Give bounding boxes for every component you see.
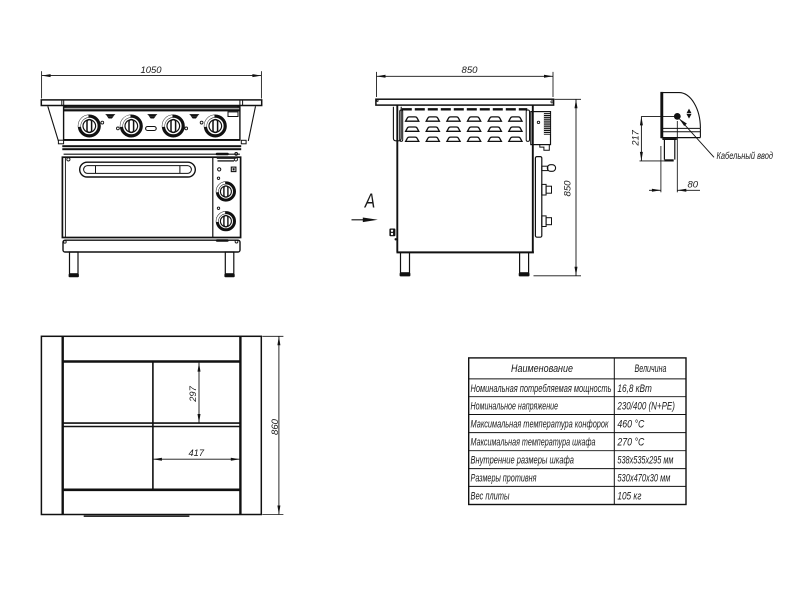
svg-text:297: 297 xyxy=(188,386,199,403)
svg-text:530х470х30 мм: 530х470х30 мм xyxy=(617,473,670,485)
svg-text:105 кг: 105 кг xyxy=(617,490,642,502)
svg-text:1050: 1050 xyxy=(141,65,163,76)
svg-text:Номинальная потребляемая мощно: Номинальная потребляемая мощность xyxy=(471,383,612,395)
svg-text:Максимальная температура конфо: Максимальная температура конфорок xyxy=(471,419,610,431)
svg-text:Номинальное напряжение: Номинальное напряжение xyxy=(471,401,559,413)
svg-text:850: 850 xyxy=(563,180,574,197)
svg-text:270 °С: 270 °С xyxy=(617,437,645,449)
svg-text:217: 217 xyxy=(631,129,642,146)
svg-text:850: 850 xyxy=(462,65,479,76)
svg-text:Величина: Величина xyxy=(635,363,667,375)
svg-text:230/400 (N+PE): 230/400 (N+PE) xyxy=(617,401,675,413)
svg-text:460 °С: 460 °С xyxy=(617,419,644,431)
svg-text:Размеры противня: Размеры противня xyxy=(471,473,537,485)
svg-text:Вес плиты: Вес плиты xyxy=(471,490,510,502)
svg-text:80: 80 xyxy=(688,180,699,191)
svg-text:A: A xyxy=(364,191,375,213)
svg-text:16,8 кВт: 16,8 кВт xyxy=(617,383,652,395)
svg-text:538х535х295 мм: 538х535х295 мм xyxy=(617,455,673,467)
svg-text:860: 860 xyxy=(270,418,281,435)
svg-text:Максимальная температура шкафа: Максимальная температура шкафа xyxy=(471,437,596,449)
svg-text:Внутренние размеры шкафа: Внутренние размеры шкафа xyxy=(471,455,575,467)
svg-text:417: 417 xyxy=(189,448,205,459)
svg-text:Наименование: Наименование xyxy=(511,363,573,375)
svg-text:Кабельный ввод: Кабельный ввод xyxy=(717,150,774,162)
